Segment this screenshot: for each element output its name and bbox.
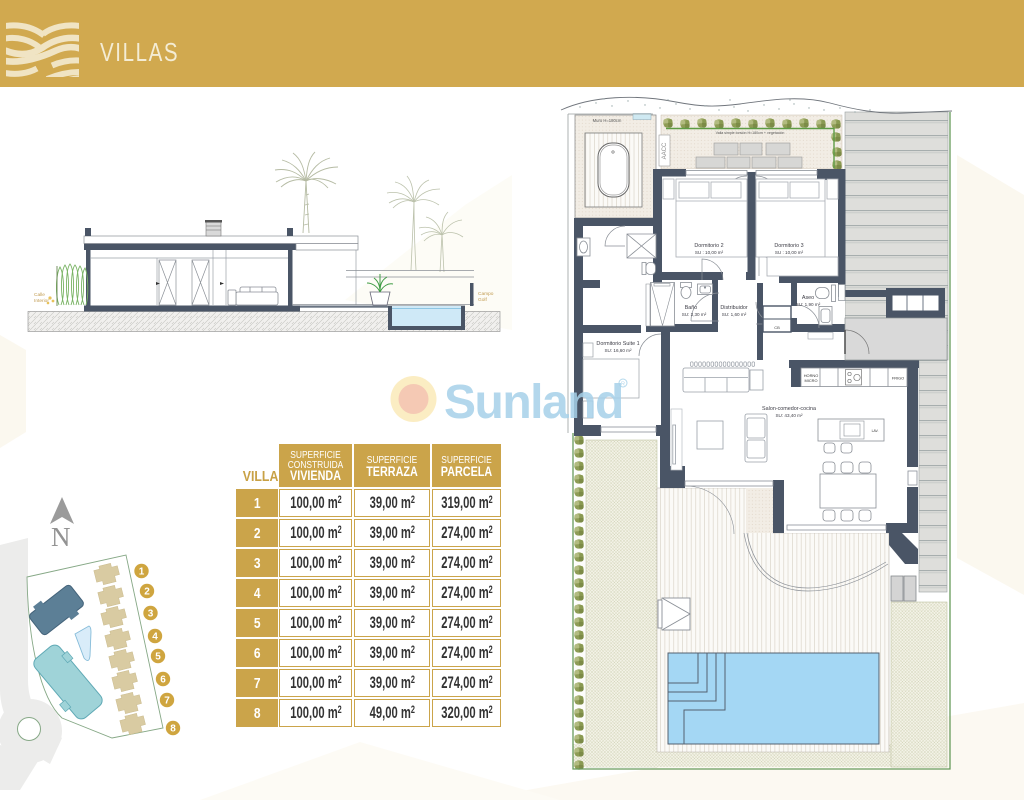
svg-text:R: R xyxy=(621,381,625,387)
svg-text:7: 7 xyxy=(164,696,170,707)
svg-text:8: 8 xyxy=(170,724,176,735)
svg-text:FRIGO: FRIGO xyxy=(892,376,904,381)
svg-text:Valla simple torsión H=180cm +: Valla simple torsión H=180cm + vegetació… xyxy=(716,131,785,135)
svg-text:SU: 3,30 m²: SU: 3,30 m² xyxy=(682,312,707,317)
svg-text:AACC: AACC xyxy=(662,142,668,159)
svg-text:Golf: Golf xyxy=(478,297,487,303)
svg-text:Dormitorio 3: Dormitorio 3 xyxy=(774,243,803,249)
svg-text:LAV.: LAV. xyxy=(872,429,879,433)
svg-text:6: 6 xyxy=(160,675,166,686)
svg-text:Campo: Campo xyxy=(478,291,494,297)
svg-text:Distribuidor: Distribuidor xyxy=(720,305,747,311)
svg-text:SU: 16,60 m²: SU: 16,60 m² xyxy=(604,348,632,353)
svg-text:CB: CB xyxy=(774,325,780,330)
svg-text:Baño: Baño xyxy=(685,305,698,311)
svg-text:N: N xyxy=(51,522,71,552)
svg-text:1: 1 xyxy=(139,567,145,578)
svg-text:Dormitorio Suite 1: Dormitorio Suite 1 xyxy=(596,341,639,347)
svg-text:Sunland: Sunland xyxy=(444,376,623,429)
svg-text:2: 2 xyxy=(144,587,150,598)
svg-text:Interior: Interior xyxy=(34,298,49,304)
svg-text:Dormitorio 2: Dormitorio 2 xyxy=(694,243,723,249)
svg-text:SU : 10,00 m²: SU : 10,00 m² xyxy=(775,250,804,255)
svg-text:SU: 1,90 m²: SU: 1,90 m² xyxy=(796,302,821,307)
svg-text:SU: 43,40 m²: SU: 43,40 m² xyxy=(775,413,803,418)
svg-text:Aseo: Aseo xyxy=(802,295,814,301)
svg-text:SU : 10,00 m²: SU : 10,00 m² xyxy=(695,250,724,255)
svg-text:Salon-comedor-cocina: Salon-comedor-cocina xyxy=(762,406,816,412)
svg-text:5: 5 xyxy=(155,652,161,663)
svg-text:4: 4 xyxy=(152,632,158,643)
svg-text:Muro H=180cm: Muro H=180cm xyxy=(593,118,622,123)
svg-text:Calle: Calle xyxy=(34,292,45,298)
svg-text:SU: 1,60 m²: SU: 1,60 m² xyxy=(722,312,747,317)
svg-text:3: 3 xyxy=(148,609,154,620)
svg-text:MICRO: MICRO xyxy=(805,378,818,383)
